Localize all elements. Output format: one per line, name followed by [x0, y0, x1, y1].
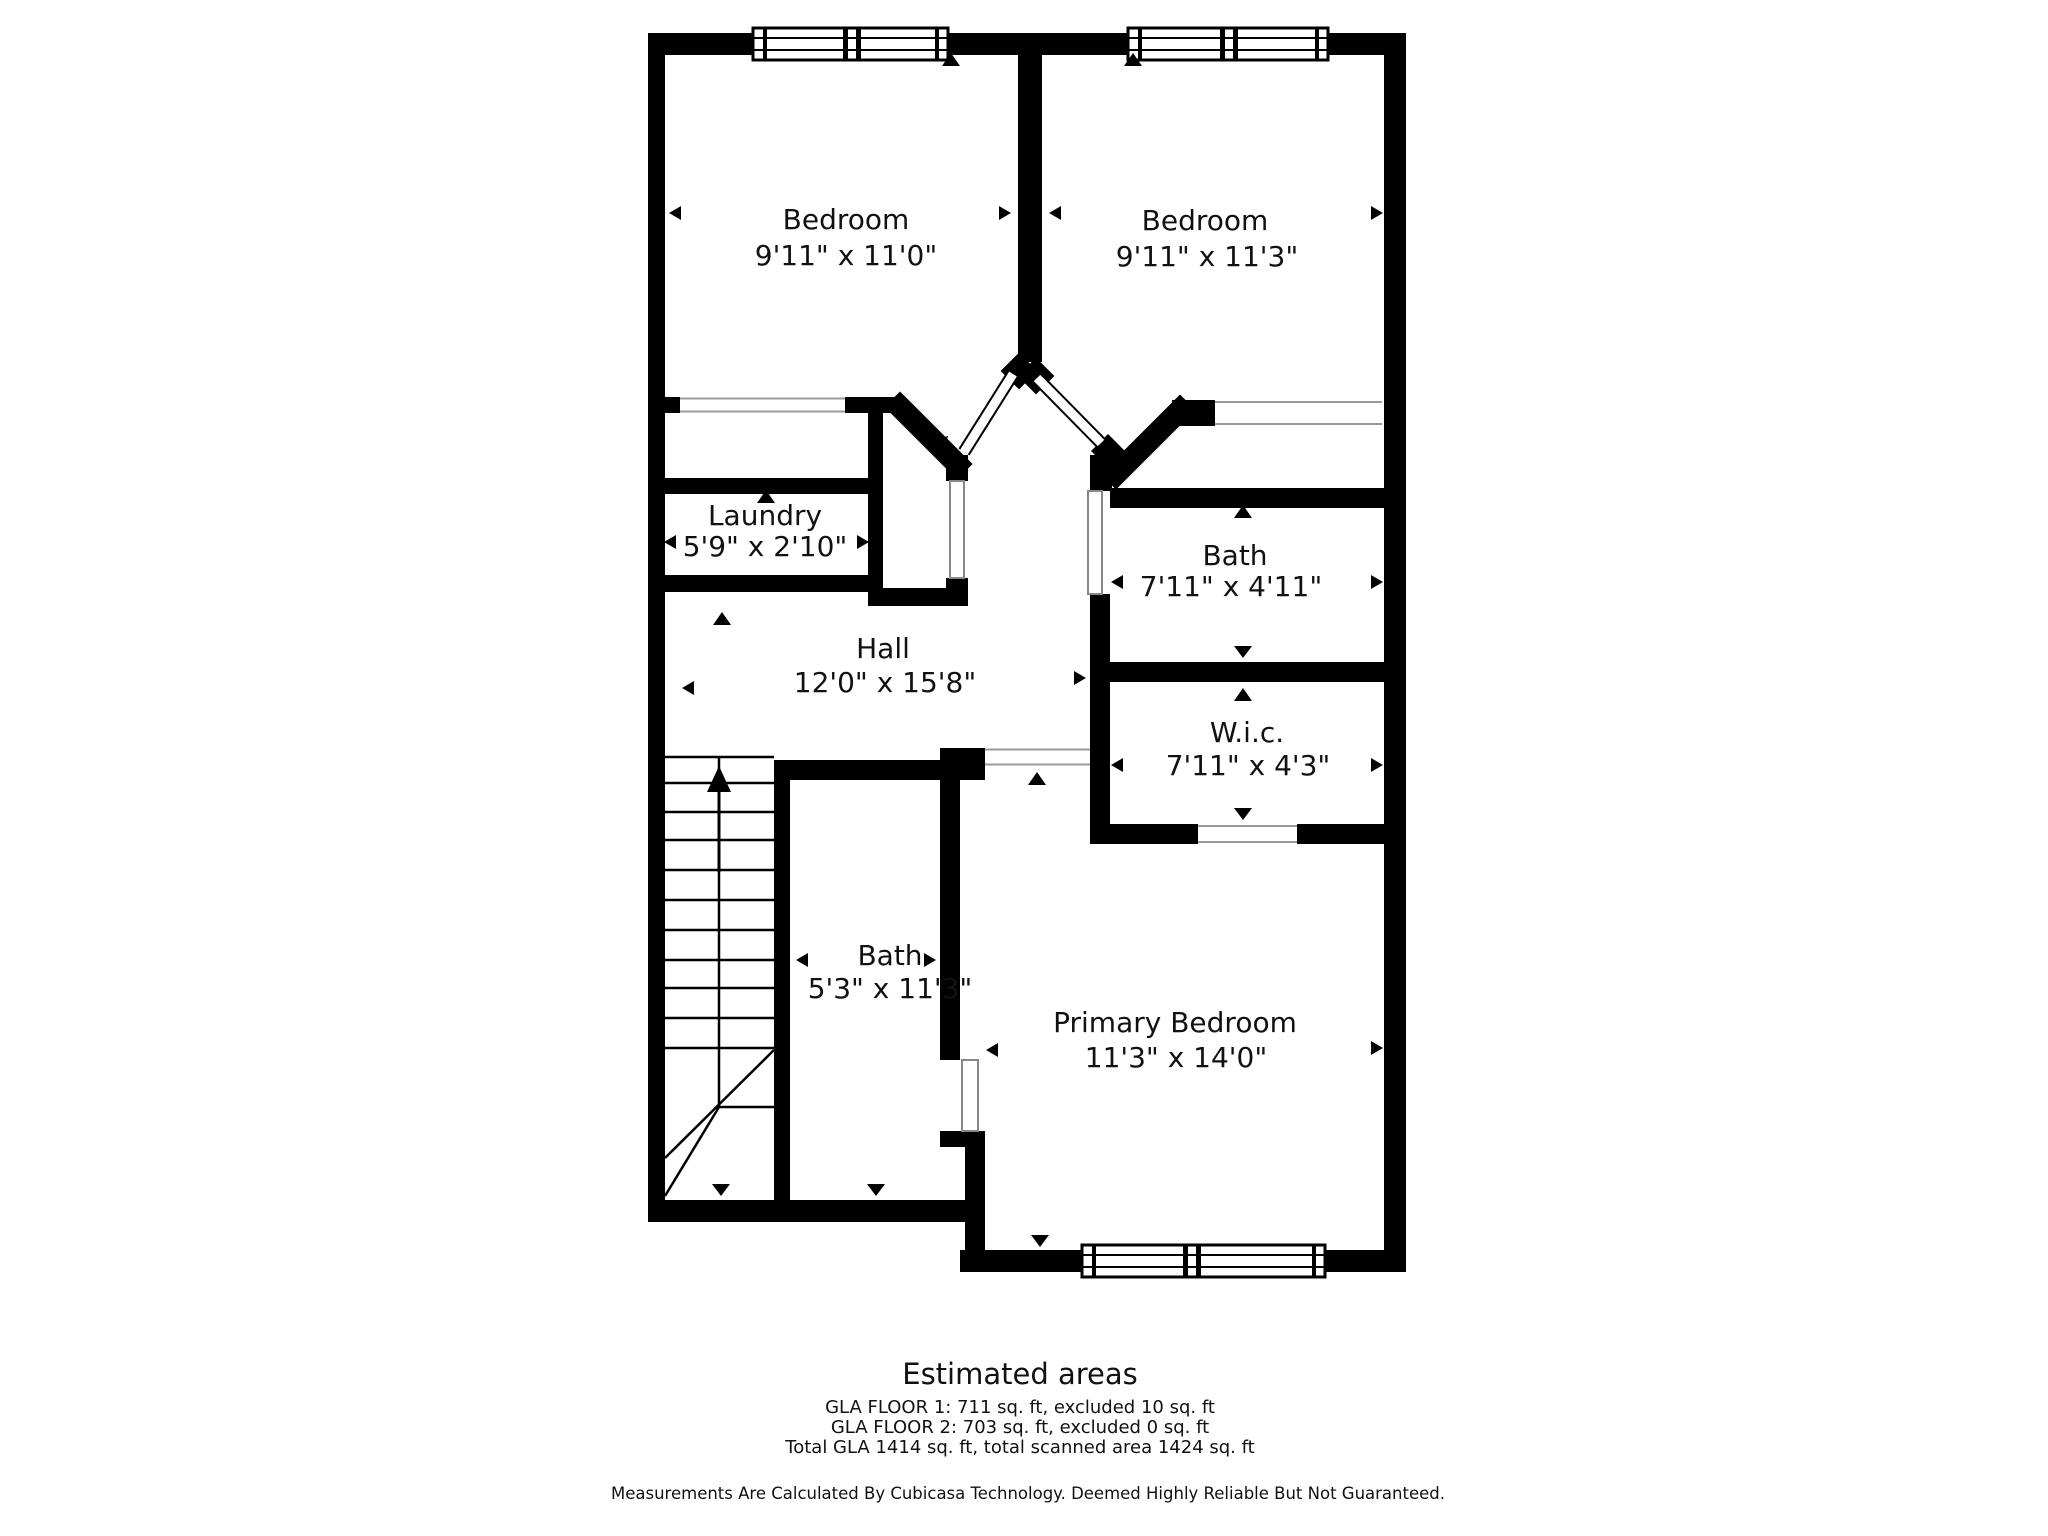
door-icon — [1037, 378, 1101, 443]
room-dims-laundry: 5'9" x 2'10" — [683, 530, 848, 563]
room-dims-wic: 7'11" x 4'3" — [1166, 749, 1331, 782]
room-label-hall: Hall — [856, 632, 910, 665]
room-label-bedroom-2: Bedroom — [1142, 204, 1269, 237]
door-icon — [962, 1060, 978, 1131]
floor-plan-page: Bedroom 9'11" x 11'0" Bedroom 9'11" x 11… — [0, 0, 2048, 1536]
door-icon — [1088, 491, 1102, 594]
door-icon — [964, 374, 1013, 452]
room-dims-bedroom-1: 9'11" x 11'0" — [755, 239, 937, 272]
room-dims-bath-lower: 5'3" x 11'3" — [808, 972, 973, 1005]
summary-line-floor1: GLA FLOOR 1: 711 sq. ft, excluded 10 sq.… — [825, 1397, 1215, 1418]
room-dims-bedroom-2: 9'11" x 11'3" — [1116, 240, 1298, 273]
summary-title: Estimated areas — [902, 1357, 1138, 1391]
window-icon — [1082, 1245, 1325, 1277]
disclaimer-text: Measurements Are Calculated By Cubicasa … — [611, 1484, 1445, 1503]
stairs-icon — [665, 757, 774, 1196]
room-label-wic: W.i.c. — [1210, 716, 1284, 749]
room-label-bedroom-1: Bedroom — [783, 203, 910, 236]
summary-line-total: Total GLA 1414 sq. ft, total scanned are… — [784, 1437, 1254, 1458]
room-label-bath-lower: Bath — [857, 939, 922, 972]
summary-line-floor2: GLA FLOOR 2: 703 sq. ft, excluded 0 sq. … — [831, 1417, 1209, 1438]
room-label-bath-upper: Bath — [1202, 539, 1267, 572]
walls — [648, 33, 1406, 1272]
room-label-laundry: Laundry — [708, 499, 822, 532]
room-dims-hall: 12'0" x 15'8" — [794, 666, 976, 699]
window-icon — [753, 28, 948, 60]
room-dims-primary-bedroom: 11'3" x 14'0" — [1085, 1041, 1267, 1074]
room-label-primary-bedroom: Primary Bedroom — [1053, 1006, 1297, 1039]
door-icon — [950, 481, 964, 578]
summary-block: Estimated areas GLA FLOOR 1: 711 sq. ft,… — [611, 1357, 1445, 1503]
room-dims-bath-upper: 7'11" x 4'11" — [1140, 570, 1322, 603]
window-icon — [1128, 28, 1328, 60]
floor-plan-canvas: Bedroom 9'11" x 11'0" Bedroom 9'11" x 11… — [0, 0, 2048, 1536]
